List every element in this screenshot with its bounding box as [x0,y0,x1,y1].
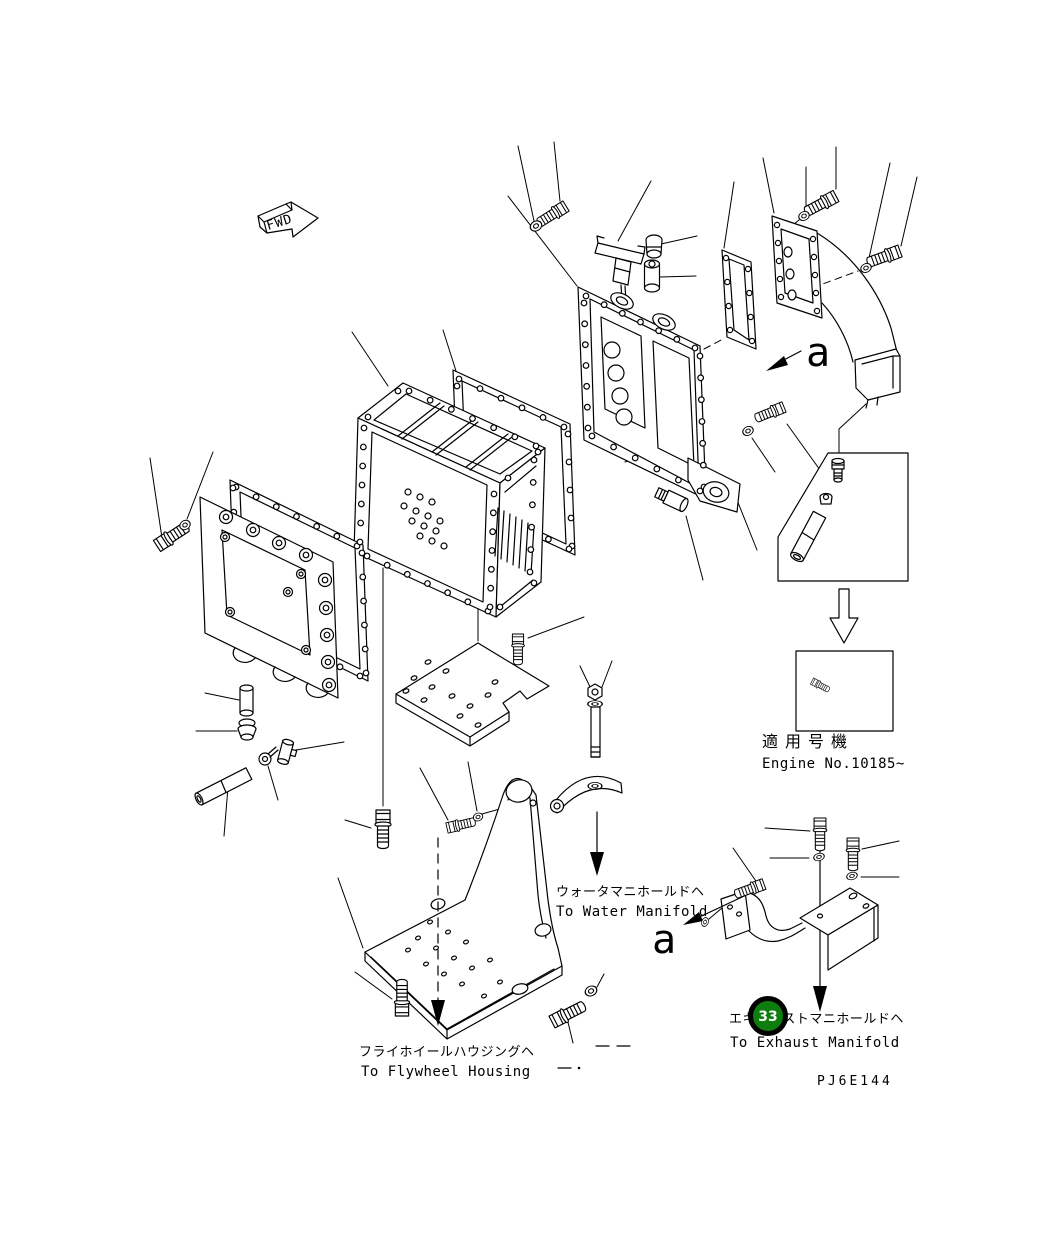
cap-nut [646,235,662,258]
washer [584,984,599,998]
sleeve [645,260,660,292]
bolt [512,634,525,665]
fwd-arrow: FWD [258,202,318,237]
bolt [375,810,391,849]
exhaust-manifold-en: To Exhaust Manifold [730,1035,900,1051]
bolt [446,816,477,834]
detail-arrow [830,589,858,643]
plug [238,719,256,740]
t-fitting [595,236,645,301]
engine-applicability-box: 適用号機 Engine No.10185~ [762,651,905,772]
bolt [846,838,860,871]
parts-detail-box [778,453,908,581]
tube [193,768,251,806]
view-a-top-label: a [806,330,830,376]
parts-diagram-page: FWD [0,0,1059,1239]
clamp [259,747,278,765]
callout-33-badge[interactable]: 33 [751,999,786,1034]
water-manifold-callout: ウォータマニホールドヘ To Water Manifold [556,812,708,920]
applicability-jp: 適用号機 [762,732,854,751]
water-manifold-link [551,684,623,813]
mounting-plate [396,643,549,746]
fwd-label: FWD [265,212,295,234]
washer [813,852,825,862]
manifold-gasket [722,250,756,349]
cap [820,494,832,505]
bolt [753,401,786,424]
water-manifold-en: To Water Manifold [556,904,708,920]
spacer [240,685,253,716]
reference-dashes [558,1046,630,1069]
bolt [394,979,409,1016]
flywheel-housing-jp: フライホイールハウジングヘ [359,1045,535,1060]
valve [277,738,299,766]
drawing-code: PJ6E144 [817,1074,893,1089]
exploded-parts-diagram: FWD [0,0,1059,1239]
bolt [813,818,827,851]
applicability-en: Engine No.10185~ [762,756,905,772]
view-a-top: a [766,330,830,376]
callout-33-number: 33 [758,1009,777,1025]
flywheel-housing-en: To Flywheel Housing [361,1064,531,1080]
water-manifold-jp: ウォータマニホールドヘ [556,885,705,900]
bolt [733,878,766,901]
intake-elbow [772,216,900,408]
washer [846,871,858,881]
view-a-bottom-label: a [652,917,676,963]
support-bracket [365,779,562,1040]
sensor [832,459,844,483]
washer [741,425,754,437]
